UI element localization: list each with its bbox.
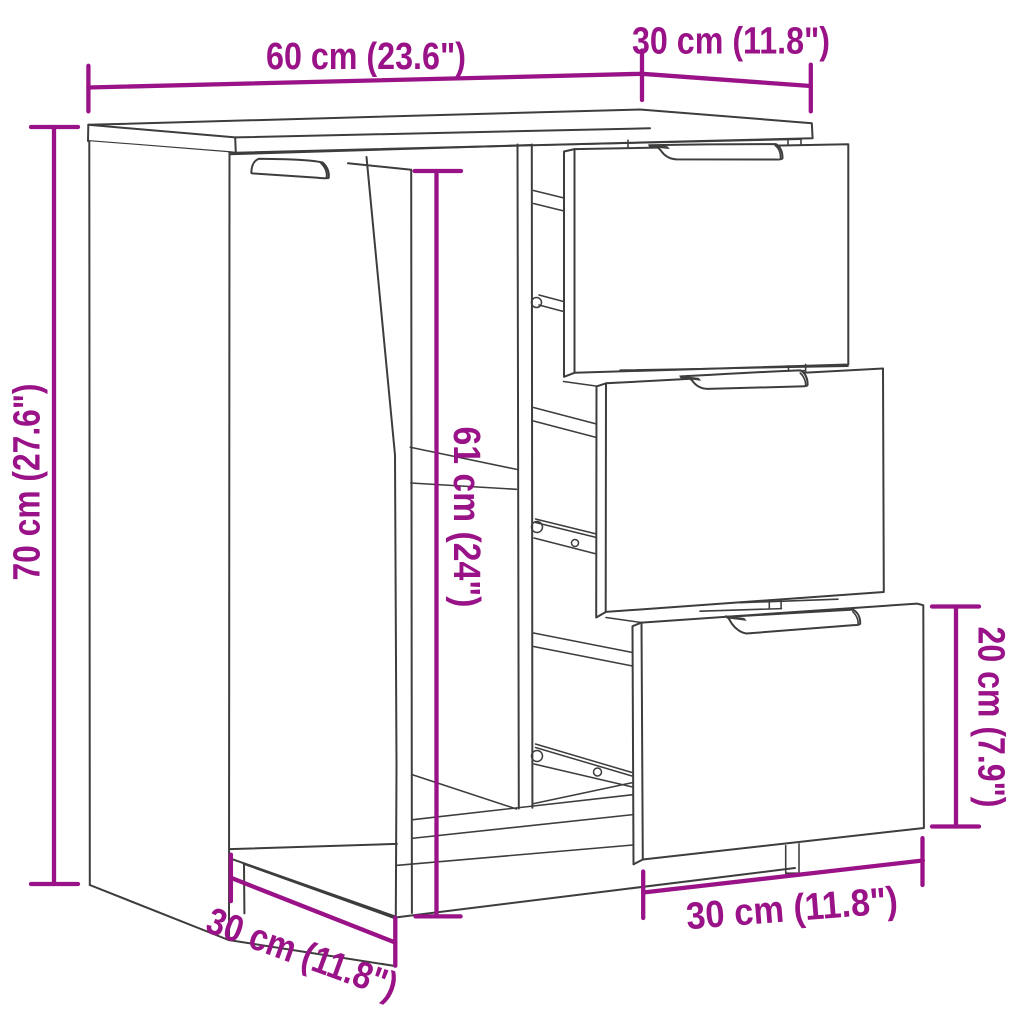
svg-text:30 cm (11.8"): 30 cm (11.8") <box>201 900 403 1008</box>
svg-text:30 cm (11.8"): 30 cm (11.8") <box>685 880 900 939</box>
svg-text:60 cm (23.6"): 60 cm (23.6") <box>266 36 466 78</box>
svg-text:61 cm (24"): 61 cm (24") <box>445 427 487 608</box>
svg-text:20 cm (7.9"): 20 cm (7.9") <box>970 627 1012 808</box>
svg-text:70 cm (27.6"): 70 cm (27.6") <box>7 384 49 581</box>
svg-text:30 cm (11.8"): 30 cm (11.8") <box>632 21 830 63</box>
